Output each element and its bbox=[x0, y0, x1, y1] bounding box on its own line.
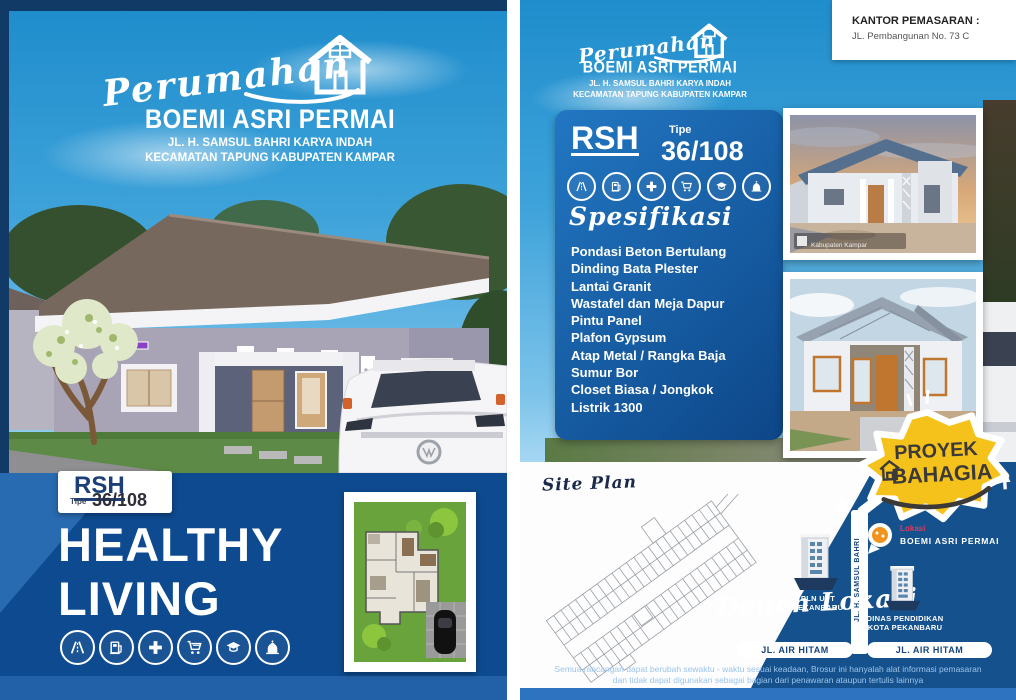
proyek-line2: BAHAGIA bbox=[891, 459, 993, 489]
spec-title: Spesifikasi bbox=[569, 202, 732, 231]
background-tree bbox=[983, 100, 1016, 302]
road-air-hitam-right: JL. AIR HITAM bbox=[867, 642, 992, 658]
marker-name: BOEMI ASRI PERMAI bbox=[900, 536, 999, 546]
type-badge-card: RSH Tipe 36/108 bbox=[58, 471, 172, 513]
spec-item: Pondasi Beton Bertulang bbox=[571, 243, 726, 260]
building2-label: DINAS PENDIDIKAN KOTA PEKANBARU bbox=[850, 614, 960, 632]
fuel-icon bbox=[602, 172, 631, 201]
disclaimer-line2: dan tidak dapat digunakan sebagai bagian… bbox=[534, 675, 1002, 686]
spec-box: RSH Tipe 36/108 Spesifikasi Pondasi Beto… bbox=[555, 110, 783, 440]
tipe-label: Tipe bbox=[669, 124, 691, 136]
spec-item: Sumur Bor bbox=[571, 364, 726, 381]
education-icon bbox=[216, 630, 251, 665]
amenity-icons-row bbox=[60, 630, 290, 665]
tipe-value: 36/108 bbox=[661, 136, 744, 167]
right-page: Perumahan BOEMI ASRI PERMAI JL. H. SAMSU… bbox=[520, 0, 1016, 700]
site-plan-label: Site Plan bbox=[542, 472, 638, 495]
spec-item: Closet Biasa / Jongkok bbox=[571, 381, 726, 398]
logo-address-2: KECAMATAN TAPUNG KABUPATEN KAMPAR bbox=[550, 90, 770, 99]
logo-name: BOEMI ASRI PERMAI bbox=[550, 59, 770, 77]
type-code: RSH bbox=[571, 120, 639, 157]
left-page: Perumahan BOEMI ASRI PERMAI JL. H. SAMSU… bbox=[0, 0, 507, 700]
spec-item: Listrik 1300 bbox=[571, 399, 726, 416]
logo-address-1: JL. H. SAMSUL BAHRI KARYA INDAH bbox=[110, 137, 430, 149]
logo-address-2: KECAMATAN TAPUNG KABUPATEN KAMPAR bbox=[110, 152, 430, 164]
brochure-canvas: Perumahan BOEMI ASRI PERMAI JL. H. SAMSU… bbox=[0, 0, 1016, 700]
page-edge-left bbox=[0, 0, 9, 473]
car-illustration bbox=[339, 360, 507, 473]
tipe-value: 36/108 bbox=[92, 490, 147, 511]
headline-line1: HEALTHY bbox=[58, 521, 283, 568]
cart-icon bbox=[177, 630, 212, 665]
band-bottom-strip bbox=[0, 676, 507, 700]
spec-list: Pondasi Beton Bertulang Dinding Bata Ple… bbox=[571, 243, 726, 416]
building1-label: PLN UPT PEKANBARU bbox=[768, 594, 868, 612]
page-edge-top bbox=[0, 0, 507, 11]
office-address: JL. Pembangunan No. 73 C bbox=[852, 31, 969, 42]
spec-item: Dinding Bata Plester bbox=[571, 260, 726, 277]
floor-plan-thumbnail bbox=[344, 492, 476, 672]
logo-name: BOEMI ASRI PERMAI bbox=[110, 104, 430, 135]
spec-item: Plafon Gypsum bbox=[571, 329, 726, 346]
spec-item: Pintu Panel bbox=[571, 312, 726, 329]
tipe-label: Tipe bbox=[70, 497, 86, 506]
amenity-icons-row bbox=[567, 172, 771, 201]
disclaimer-line1: Semua rancangan dapat berubah sewaktu - … bbox=[534, 664, 1002, 675]
mosque-icon bbox=[255, 630, 290, 665]
highway-icon bbox=[60, 630, 95, 665]
building-icon-pln bbox=[792, 534, 840, 592]
logo-address-1: JL. H. SAMSUL BAHRI KARYA INDAH bbox=[550, 79, 770, 88]
road-air-hitam-left: JL. AIR HITAM bbox=[737, 642, 853, 658]
spec-item: Atap Metal / Rangka Baja bbox=[571, 347, 726, 364]
marketing-office-box: KANTOR PEMASARAN : JL. Pembangunan No. 7… bbox=[832, 0, 1016, 60]
headline-line2: LIVING bbox=[58, 575, 221, 622]
house-photo-1: Kabupaten Kampar bbox=[783, 108, 983, 260]
office-title: KANTOR PEMASARAN : bbox=[852, 15, 980, 27]
education-icon bbox=[707, 172, 736, 201]
bottom-strip bbox=[520, 688, 1016, 700]
house-render-illustration bbox=[9, 170, 507, 473]
spec-item: Lantai Granit bbox=[571, 278, 726, 295]
mosque-icon bbox=[742, 172, 771, 201]
photo-watermark: Kabupaten Kampar bbox=[811, 242, 867, 249]
fuel-icon bbox=[99, 630, 134, 665]
proyek-bahagia-badge: PROYEK BAHAGIA bbox=[847, 396, 1013, 532]
medical-icon bbox=[138, 630, 173, 665]
building-icon-dinas bbox=[878, 566, 928, 612]
spec-item: Wastafel dan Meja Dapur bbox=[571, 295, 726, 312]
logo-house-icon bbox=[240, 32, 380, 112]
highway-icon bbox=[567, 172, 596, 201]
medical-icon bbox=[637, 172, 666, 201]
cart-icon bbox=[672, 172, 701, 201]
